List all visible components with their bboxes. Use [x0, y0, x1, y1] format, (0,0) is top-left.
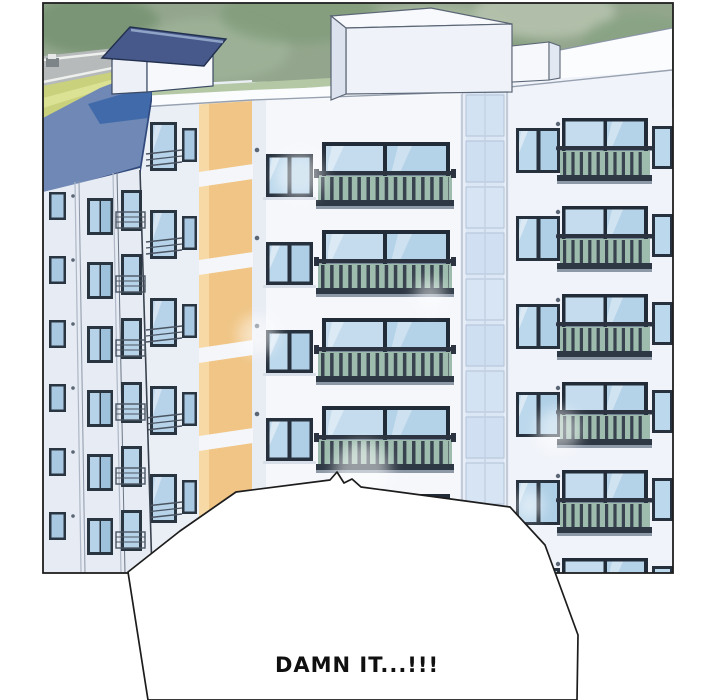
speech-bubble-text: DAMN IT...!!!: [275, 653, 439, 677]
panel-illustration: [0, 0, 720, 700]
rooftop-house: [102, 27, 226, 94]
rooftop-box-small: [512, 42, 560, 82]
comic-page: DAMN IT...!!!: [0, 0, 720, 700]
stairwell-column: [460, 70, 509, 573]
rooftop-box: [331, 8, 512, 100]
left-tower: [43, 68, 152, 573]
